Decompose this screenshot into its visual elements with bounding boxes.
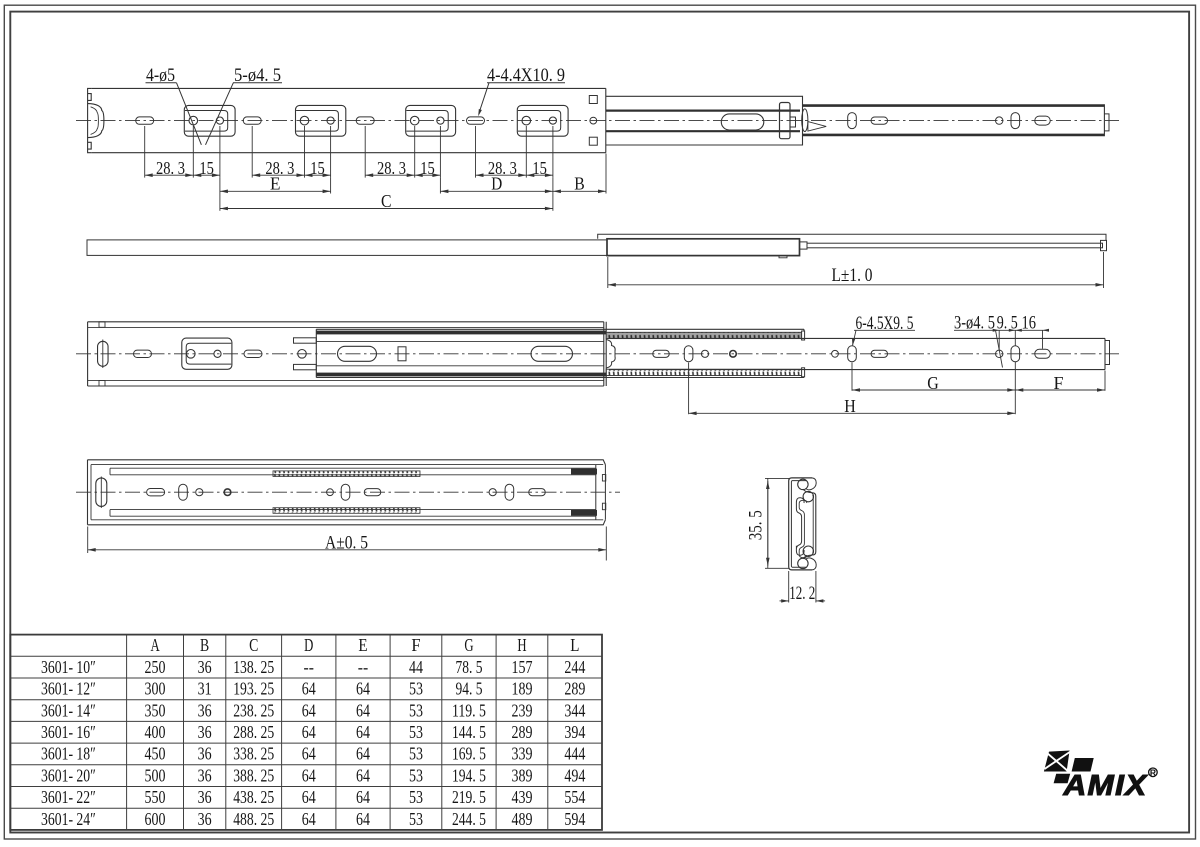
svg-text:3601- 16″: 3601- 16″ — [41, 722, 96, 742]
svg-text:3601- 14″: 3601- 14″ — [41, 700, 96, 720]
svg-text:64: 64 — [356, 765, 370, 785]
svg-text:12. 2: 12. 2 — [789, 584, 815, 604]
svg-text:H: H — [517, 635, 526, 655]
svg-text:36: 36 — [198, 657, 212, 677]
svg-text:64: 64 — [302, 722, 316, 742]
svg-text:64: 64 — [356, 787, 370, 807]
svg-text:494: 494 — [564, 765, 585, 785]
svg-text:289: 289 — [511, 722, 532, 742]
svg-text:388. 25: 388. 25 — [233, 765, 274, 785]
svg-text:339: 339 — [511, 744, 532, 764]
svg-text:64: 64 — [356, 700, 370, 720]
svg-text:193. 25: 193. 25 — [233, 679, 274, 699]
svg-text:119. 5: 119. 5 — [452, 700, 486, 720]
svg-text:G: G — [464, 635, 473, 655]
svg-text:250: 250 — [145, 657, 166, 677]
svg-text:C: C — [381, 191, 392, 211]
svg-text:53: 53 — [409, 787, 423, 807]
svg-text:64: 64 — [356, 722, 370, 742]
svg-text:400: 400 — [145, 722, 166, 742]
svg-text:394: 394 — [564, 722, 585, 742]
svg-text:389: 389 — [511, 765, 532, 785]
svg-text:F: F — [411, 635, 420, 655]
svg-text:444: 444 — [564, 744, 585, 764]
svg-text:C: C — [249, 635, 258, 655]
svg-text:B: B — [200, 635, 209, 655]
svg-text:189: 189 — [511, 679, 532, 699]
svg-text:53: 53 — [409, 809, 423, 829]
svg-text:238. 25: 238. 25 — [233, 700, 274, 720]
svg-text:53: 53 — [409, 700, 423, 720]
svg-text:64: 64 — [356, 809, 370, 829]
svg-text:A±0. 5: A±0. 5 — [325, 533, 368, 553]
svg-text:439: 439 — [511, 787, 532, 807]
svg-text:64: 64 — [302, 744, 316, 764]
svg-text:L: L — [570, 635, 579, 655]
svg-text:15: 15 — [199, 158, 214, 178]
svg-text:488. 25: 488. 25 — [233, 809, 274, 829]
svg-text:64: 64 — [302, 700, 316, 720]
svg-text:--: -- — [358, 657, 368, 677]
svg-text:28. 3: 28. 3 — [156, 158, 185, 178]
svg-text:438. 25: 438. 25 — [233, 787, 274, 807]
svg-text:36: 36 — [198, 722, 212, 742]
svg-text:A: A — [150, 635, 159, 655]
svg-text:554: 554 — [564, 787, 585, 807]
svg-text:44: 44 — [409, 657, 423, 677]
svg-text:28. 3: 28. 3 — [377, 158, 406, 178]
svg-text:L±1. 0: L±1. 0 — [832, 266, 873, 286]
svg-text:36: 36 — [198, 787, 212, 807]
svg-text:15: 15 — [532, 158, 547, 178]
svg-text:219. 5: 219. 5 — [452, 787, 486, 807]
svg-text:289: 289 — [564, 679, 585, 699]
svg-text:6-4.5X9. 5: 6-4.5X9. 5 — [856, 314, 914, 334]
svg-text:B: B — [574, 174, 585, 194]
svg-text:138. 25: 138. 25 — [233, 657, 274, 677]
svg-text:300: 300 — [145, 679, 166, 699]
svg-text:53: 53 — [409, 722, 423, 742]
svg-text:3601- 18″: 3601- 18″ — [41, 744, 96, 764]
svg-text:R: R — [1150, 767, 1156, 777]
svg-text:36: 36 — [198, 700, 212, 720]
svg-text:500: 500 — [145, 765, 166, 785]
svg-text:239: 239 — [511, 700, 532, 720]
svg-text:15: 15 — [420, 158, 435, 178]
svg-text:3601- 22″: 3601- 22″ — [41, 787, 96, 807]
svg-text:D: D — [491, 174, 502, 194]
svg-text:244: 244 — [564, 657, 585, 677]
svg-text:344: 344 — [564, 700, 585, 720]
svg-text:64: 64 — [302, 809, 316, 829]
svg-text:G: G — [927, 373, 939, 393]
svg-text:64: 64 — [302, 765, 316, 785]
svg-text:F: F — [1054, 373, 1064, 393]
svg-text:--: -- — [304, 657, 314, 677]
svg-text:31: 31 — [198, 679, 212, 699]
svg-text:157: 157 — [511, 657, 532, 677]
svg-text:35. 5: 35. 5 — [747, 510, 767, 540]
svg-text:AMIX: AMIX — [1062, 770, 1148, 802]
svg-text:36: 36 — [198, 744, 212, 764]
svg-text:64: 64 — [356, 679, 370, 699]
svg-text:94. 5: 94. 5 — [455, 679, 482, 699]
svg-text:36: 36 — [198, 809, 212, 829]
svg-text:64: 64 — [302, 679, 316, 699]
svg-text:169. 5: 169. 5 — [452, 744, 486, 764]
svg-text:D: D — [304, 635, 313, 655]
svg-text:288. 25: 288. 25 — [233, 722, 274, 742]
svg-text:600: 600 — [145, 809, 166, 829]
svg-text:3601- 10″: 3601- 10″ — [41, 657, 96, 677]
svg-text:144. 5: 144. 5 — [452, 722, 486, 742]
svg-text:E: E — [358, 635, 367, 655]
svg-text:550: 550 — [145, 787, 166, 807]
svg-text:3601- 12″: 3601- 12″ — [41, 679, 96, 699]
svg-text:194. 5: 194. 5 — [452, 765, 486, 785]
svg-text:36: 36 — [198, 765, 212, 785]
svg-text:53: 53 — [409, 744, 423, 764]
svg-text:64: 64 — [356, 744, 370, 764]
svg-text:53: 53 — [409, 679, 423, 699]
svg-text:15: 15 — [310, 158, 325, 178]
svg-text:H: H — [844, 396, 856, 416]
svg-text:3601- 20″: 3601- 20″ — [41, 765, 96, 785]
svg-text:64: 64 — [302, 787, 316, 807]
svg-text:338. 25: 338. 25 — [233, 744, 274, 764]
svg-text:350: 350 — [145, 700, 166, 720]
svg-text:594: 594 — [564, 809, 585, 829]
svg-text:3601- 24″: 3601- 24″ — [41, 809, 96, 829]
svg-text:78. 5: 78. 5 — [455, 657, 482, 677]
svg-text:E: E — [270, 174, 281, 194]
svg-text:489: 489 — [511, 809, 532, 829]
svg-text:450: 450 — [145, 744, 166, 764]
svg-text:244. 5: 244. 5 — [452, 809, 486, 829]
svg-text:53: 53 — [409, 765, 423, 785]
